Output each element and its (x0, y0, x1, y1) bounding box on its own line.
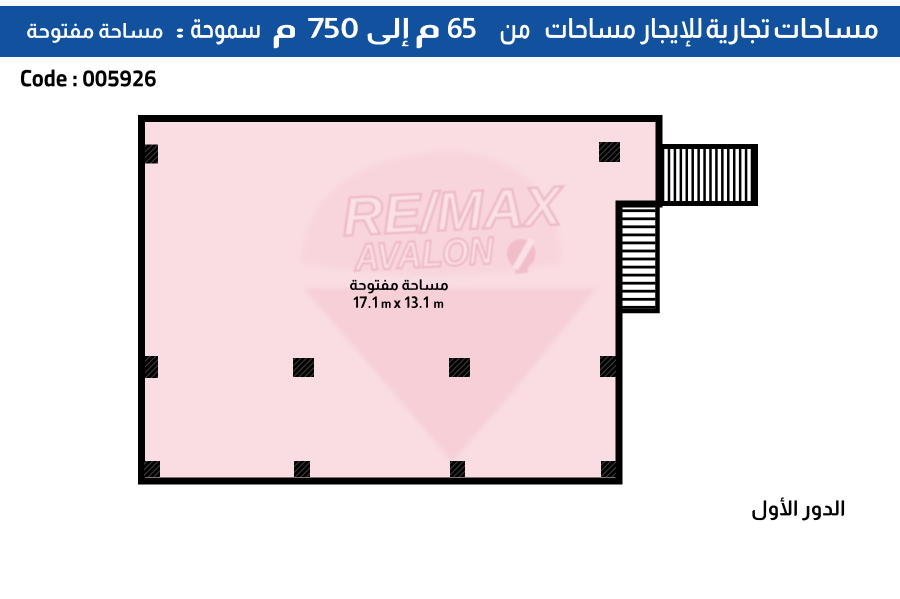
svg-text:AVALON: AVALON (353, 230, 496, 279)
